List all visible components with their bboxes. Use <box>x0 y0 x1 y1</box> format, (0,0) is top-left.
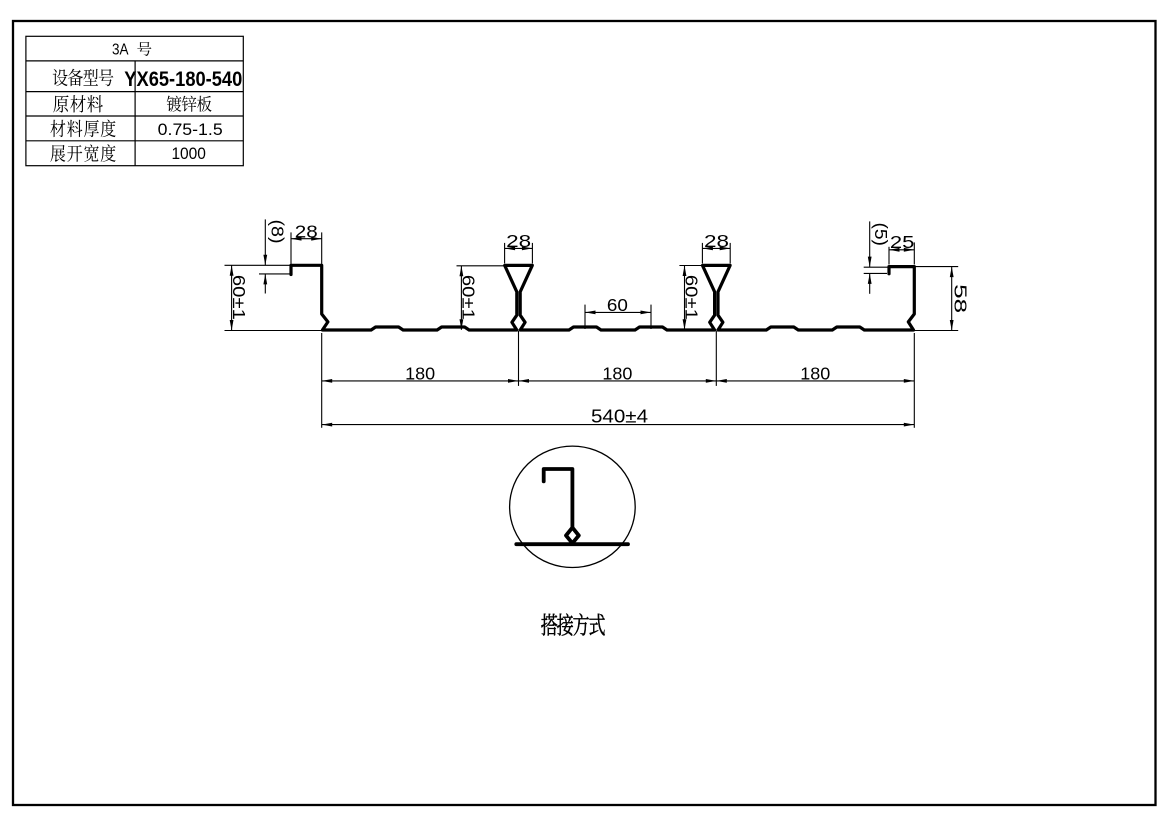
svg-text:60±1: 60±1 <box>682 275 702 320</box>
svg-text:0.75-1.5: 0.75-1.5 <box>158 120 223 139</box>
svg-text:3A: 3A <box>112 41 129 58</box>
svg-text:28: 28 <box>506 231 531 251</box>
svg-text:180: 180 <box>602 364 632 384</box>
svg-text:60: 60 <box>607 295 628 315</box>
svg-text:540±4: 540±4 <box>591 407 648 427</box>
svg-text:180: 180 <box>800 364 830 384</box>
svg-text:1000: 1000 <box>171 144 206 163</box>
svg-text:28: 28 <box>295 221 318 241</box>
svg-text:60±1: 60±1 <box>459 275 479 320</box>
svg-text:28: 28 <box>704 231 729 251</box>
svg-text:180: 180 <box>405 364 435 384</box>
svg-text:(8): (8) <box>268 220 288 244</box>
svg-text:(5): (5) <box>871 222 891 246</box>
svg-text:60±1: 60±1 <box>229 275 249 320</box>
svg-text:58: 58 <box>951 284 971 313</box>
svg-text:25: 25 <box>890 232 915 252</box>
svg-text:YX65-180-540: YX65-180-540 <box>124 67 242 91</box>
